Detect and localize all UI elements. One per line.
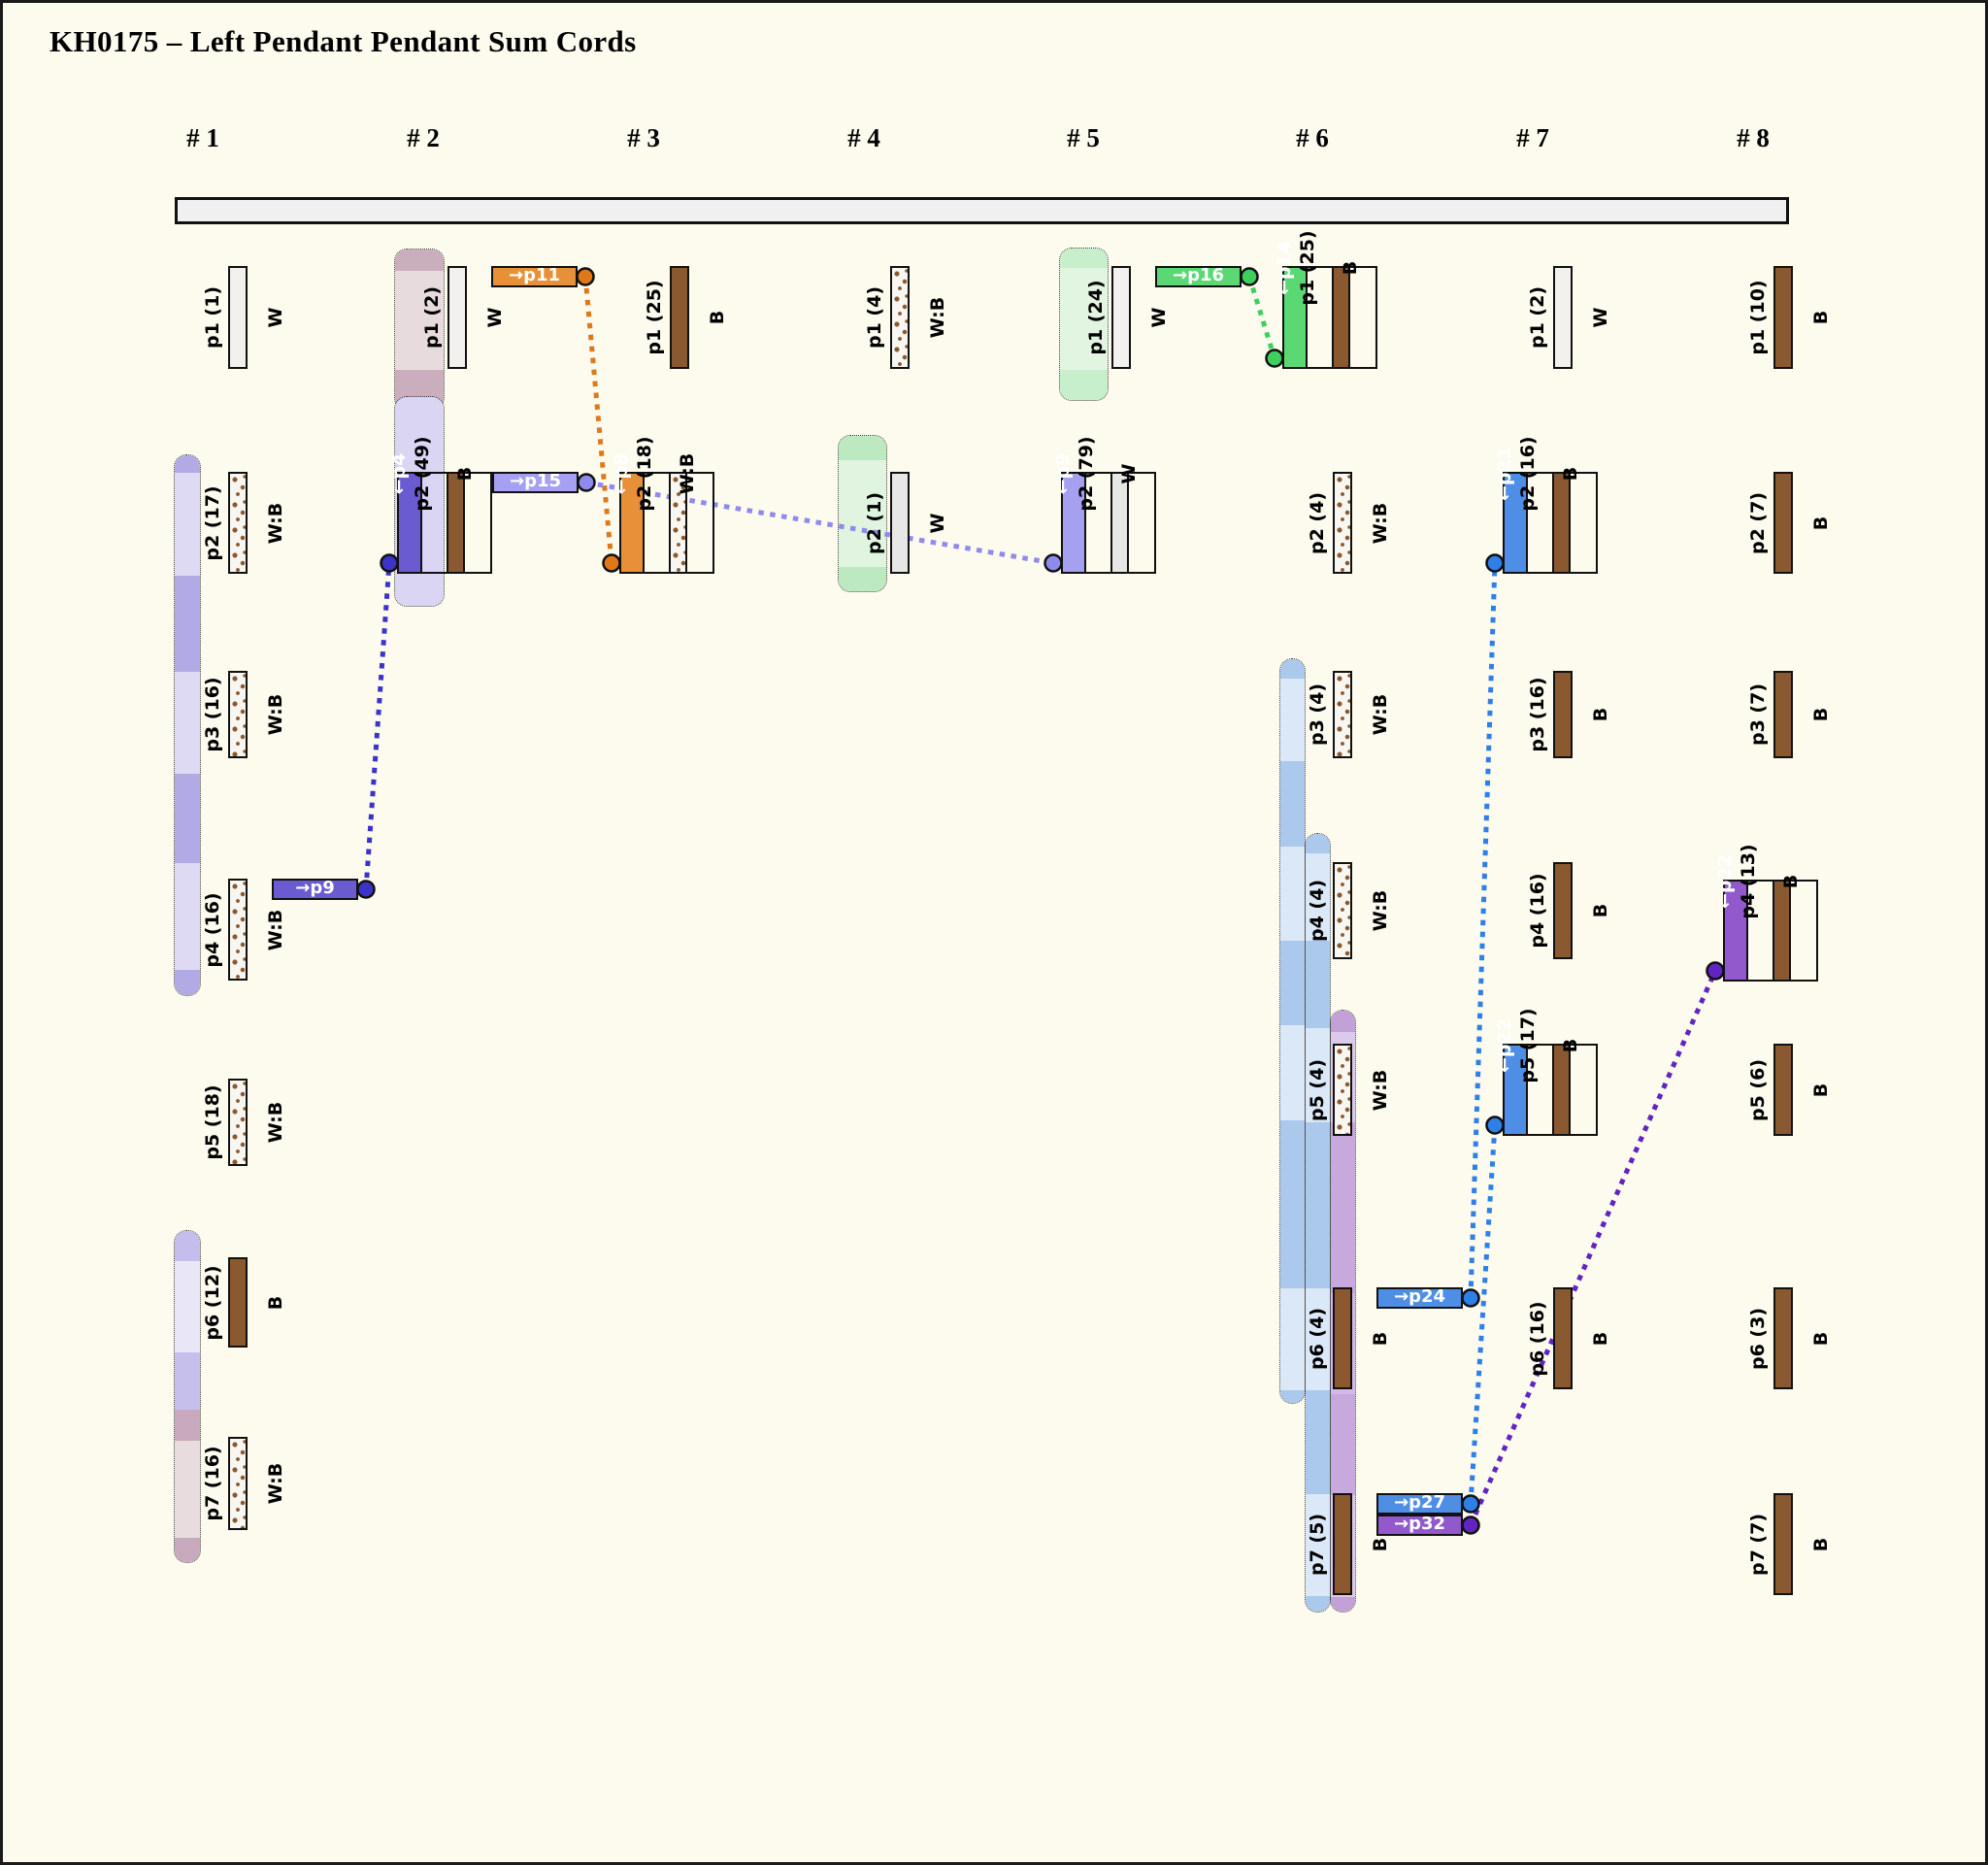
- pendant-label: p1 (24): [1085, 280, 1107, 354]
- band-segment: [1331, 1122, 1355, 1293]
- pendant-label: p1 (25): [644, 280, 665, 354]
- pendant-label: p4 (16): [1527, 873, 1548, 948]
- color-code: B: [1560, 1039, 1581, 1052]
- cord-color-swatch: [447, 474, 463, 572]
- cord-color-swatch: [1552, 474, 1569, 572]
- sum-cord-endpoint-dot: [1267, 350, 1283, 367]
- band-segment: [175, 1410, 200, 1441]
- color-code: B: [1810, 1537, 1832, 1550]
- color-code: W:B: [1370, 1069, 1391, 1110]
- pendant-label: p3 (16): [202, 677, 223, 751]
- cord-color-swatch: [1773, 882, 1789, 980]
- cord-group-band: [1305, 833, 1331, 1613]
- band-segment: [175, 473, 200, 576]
- color-code: B: [454, 467, 476, 481]
- band-segment: [1280, 847, 1305, 941]
- color-code: W: [1118, 464, 1140, 484]
- sum-cord-endpoint-dot: [1487, 1117, 1504, 1134]
- color-code-bar: W:B: [685, 474, 712, 572]
- pendant-cord-c6-p6: [1333, 1287, 1352, 1389]
- band-segment: [1306, 1390, 1330, 1494]
- sum-in-label: ←p22: [1494, 1018, 1515, 1073]
- pendant-value-bar: p2 (79): [1084, 474, 1110, 572]
- pendant-label: p3 (4): [1307, 683, 1328, 746]
- color-code: B: [1810, 1331, 1832, 1345]
- column-header-1: # 1: [186, 123, 219, 153]
- sum-cord-endpoint-dot: [358, 882, 375, 898]
- sum-cord-endpoint-dot: [604, 555, 620, 572]
- band-segment: [175, 970, 200, 996]
- sum-cord-lines-layer: [3, 3, 1988, 1865]
- band-segment: [1060, 249, 1108, 268]
- pendant-cord-c7-p6: [1553, 1287, 1573, 1389]
- cord-color-swatch: [1552, 1046, 1569, 1134]
- band-segment: [1306, 1596, 1330, 1613]
- pendant-label: p2 (7): [1747, 491, 1769, 553]
- band-segment: [175, 672, 200, 774]
- color-code: B: [1810, 516, 1832, 529]
- pendant-label: p1 (2): [1527, 286, 1548, 349]
- color-code: B: [1560, 467, 1581, 481]
- color-code: W:B: [677, 453, 698, 494]
- color-code: B: [1810, 708, 1832, 721]
- pendant-label: p4 (13): [1738, 844, 1759, 918]
- color-code: W:B: [927, 297, 948, 338]
- sum-out-label: →p24: [1376, 1287, 1463, 1309]
- sum-in-label: ←p8: [611, 453, 632, 495]
- pendant-cord-c1-p1: [228, 266, 248, 369]
- pendant-value-bar: p2 (49): [420, 474, 447, 572]
- column-header-7: # 7: [1516, 123, 1549, 153]
- pendant-label: p7 (16): [202, 1446, 223, 1520]
- band-segment: [175, 1352, 200, 1410]
- pendant-label: p1 (2): [421, 286, 443, 349]
- pendant-group-c2-p2: ←p4p2 (49)B: [397, 472, 492, 574]
- color-code: B: [1810, 311, 1832, 324]
- pendant-label: p2 (49): [412, 436, 433, 511]
- band-segment: [175, 1231, 200, 1261]
- color-code-bar: B: [463, 474, 489, 572]
- sum-cord-connector: [585, 277, 612, 563]
- pendant-label: p2 (1): [864, 491, 885, 553]
- pendant-cord-c3-p1: [670, 266, 689, 369]
- pendant-label: p1 (4): [864, 286, 885, 349]
- pendant-label: p5 (4): [1307, 1058, 1328, 1120]
- pendant-cord-c5-p1: [1111, 266, 1131, 369]
- sum-in-label: ←p9: [1052, 453, 1074, 495]
- sum-in-label: ←p21: [1494, 447, 1515, 501]
- color-code-bar: B: [1569, 1046, 1595, 1134]
- cord-group-band: [174, 454, 201, 996]
- sum-cord-connector: [1471, 1125, 1495, 1504]
- sum-cord-connector: [1249, 277, 1275, 358]
- sum-cord-connector: [1471, 563, 1495, 1298]
- sum-cord-endpoint-dot: [578, 269, 594, 285]
- pendant-group-c5-p2: ←p9p2 (79)W: [1061, 472, 1156, 574]
- pendant-label: p5 (18): [202, 1084, 223, 1159]
- pendant-cord-c8-p6: [1773, 1287, 1793, 1389]
- band-segment: [1331, 1597, 1355, 1613]
- color-code: W:B: [265, 909, 286, 949]
- color-code: W: [1590, 308, 1611, 328]
- pendant-label: p6 (12): [202, 1265, 223, 1340]
- color-code-bar: W: [1127, 474, 1153, 572]
- column-header-5: # 5: [1067, 123, 1100, 153]
- color-code: B: [1340, 261, 1361, 275]
- pendant-cord-c1-p6: [228, 1257, 248, 1348]
- sum-in-label: ←p4: [388, 453, 410, 495]
- color-code: W: [484, 308, 506, 328]
- diagram-title: KH0175 – Left Pendant Pendant Sum Cords: [50, 24, 637, 59]
- band-segment: [1280, 1120, 1305, 1288]
- pendant-label: p5 (17): [1517, 1008, 1539, 1082]
- band-segment: [175, 576, 200, 672]
- cord-color-swatch: [1332, 268, 1348, 367]
- pendant-label: p5 (6): [1747, 1058, 1769, 1120]
- pendant-label: p3 (7): [1747, 683, 1769, 746]
- pendant-label: p4 (4): [1307, 880, 1328, 942]
- sum-cord-endpoint-dot: [1045, 555, 1062, 572]
- column-header-3: # 3: [627, 123, 660, 153]
- color-code: W: [1148, 308, 1170, 328]
- color-code: W:B: [265, 1463, 286, 1504]
- cord-color-swatch: [1110, 474, 1127, 572]
- sum-out-label: →p27: [1376, 1493, 1463, 1515]
- band-segment: [1306, 941, 1330, 1028]
- pendant-label: p1 (10): [1747, 280, 1769, 354]
- color-code-bar: B: [1569, 474, 1595, 572]
- sum-out-label: →p15: [492, 472, 579, 493]
- pendant-label: p2 (79): [1076, 436, 1097, 511]
- color-code: B: [707, 311, 728, 324]
- pendant-group-c7-p2: ←p21p2 (16)B: [1503, 472, 1598, 574]
- sum-out-label: →p16: [1155, 266, 1242, 287]
- band-segment: [175, 1538, 200, 1563]
- color-code: B: [1590, 1331, 1611, 1345]
- pendant-cord-c7-p4: [1553, 862, 1573, 959]
- pendant-label: p3 (16): [1527, 677, 1548, 751]
- column-header-2: # 2: [407, 123, 440, 153]
- band-segment: [395, 250, 444, 271]
- pendant-label: p2 (17): [202, 485, 223, 560]
- pendant-value-bar: p2 (18): [643, 474, 669, 572]
- pendant-label: p2 (4): [1307, 491, 1328, 553]
- band-segment: [1280, 1288, 1305, 1390]
- sum-in-label: ←p14: [1274, 241, 1295, 295]
- color-code: W: [265, 308, 286, 328]
- pendant-label: p2 (18): [634, 436, 655, 511]
- sum-cord-endpoint-dot: [1242, 269, 1258, 285]
- band-segment: [175, 1441, 200, 1538]
- column-header-6: # 6: [1296, 123, 1329, 153]
- color-code: B: [1780, 875, 1802, 888]
- band-segment: [1306, 834, 1330, 853]
- color-code: W:B: [1370, 890, 1391, 931]
- color-code: W:B: [265, 694, 286, 735]
- band-segment: [1280, 679, 1305, 761]
- band-segment: [175, 455, 200, 473]
- band-segment: [1280, 1390, 1305, 1404]
- pendant-label: p6 (3): [1747, 1307, 1769, 1369]
- pendant-cord-c1-p7: [228, 1437, 248, 1530]
- band-segment: [1060, 370, 1108, 401]
- pendant-cord-c7-p3: [1553, 671, 1573, 758]
- pendant-label: p6 (4): [1307, 1307, 1328, 1369]
- column-header-4: # 4: [847, 123, 880, 153]
- sum-cord-endpoint-dot: [579, 475, 595, 491]
- band-segment: [1280, 659, 1305, 679]
- band-segment: [1306, 1122, 1330, 1288]
- pendant-cord-c4-p2: [890, 472, 910, 574]
- color-code: W: [927, 513, 948, 533]
- color-code: B: [1810, 1082, 1832, 1096]
- band-segment: [839, 567, 886, 592]
- color-code: B: [1370, 1331, 1391, 1345]
- pendant-cord-c2-p1: [447, 266, 467, 369]
- color-code: B: [1590, 904, 1611, 917]
- pendant-cord-c8-p2: [1773, 472, 1793, 574]
- pendant-group-c6-p1: ←p14p1 (25)B: [1282, 266, 1377, 369]
- pendant-cord-c1-p3: [228, 671, 248, 758]
- band-segment: [175, 1261, 200, 1352]
- pendant-cord-c8-p5: [1773, 1044, 1793, 1136]
- band-segment: [1280, 761, 1305, 847]
- pendant-value-bar: p4 (13): [1746, 882, 1773, 980]
- pendant-group-c8-p4: ←p22p4 (13)B: [1723, 880, 1818, 982]
- pendant-cord-c7-p1: [1553, 266, 1573, 369]
- pendant-value-bar: p5 (17): [1526, 1046, 1552, 1134]
- sum-in-label: ←p22: [1714, 854, 1736, 909]
- cord-group-band: [1279, 658, 1306, 1404]
- pendant-cord-c1-p5: [228, 1079, 248, 1166]
- color-code: B: [1370, 1537, 1391, 1550]
- pendant-label: p1 (1): [202, 286, 223, 349]
- sum-cord-endpoint-dot: [1463, 1290, 1479, 1307]
- band-segment: [175, 774, 200, 863]
- pendant-cord-c8-p7: [1773, 1493, 1793, 1595]
- cord-group-band: [174, 1230, 201, 1563]
- color-code-bar: B: [1789, 882, 1815, 980]
- pendant-cord-c6-p3: [1333, 671, 1352, 758]
- pendant-cord-c6-p4: [1333, 862, 1352, 959]
- pendant-cord-c8-p1: [1773, 266, 1793, 369]
- band-segment: [1331, 1394, 1355, 1495]
- column-header-8: # 8: [1737, 123, 1770, 153]
- pendant-cord-c4-p1: [890, 266, 910, 369]
- pendant-label: p1 (25): [1297, 230, 1318, 305]
- sum-cord-endpoint-dot: [1707, 963, 1724, 980]
- pendant-value-bar: p2 (16): [1526, 474, 1552, 572]
- sum-cord-endpoint-dot: [1463, 1496, 1479, 1513]
- primary-cord-bar: [175, 197, 1789, 224]
- sum-cord-endpoint-dot: [1463, 1517, 1479, 1534]
- band-segment: [175, 863, 200, 970]
- band-segment: [1280, 1025, 1305, 1120]
- sum-out-label: →p11: [491, 266, 578, 287]
- pendant-label: p2 (16): [1517, 436, 1539, 511]
- pendant-group-c7-p5: ←p22p5 (17)B: [1503, 1044, 1598, 1136]
- pendant-label: p6 (16): [1527, 1301, 1548, 1376]
- band-segment: [1331, 1011, 1355, 1032]
- sum-cord-dots-layer: [3, 3, 1988, 1865]
- pendant-cord-c6-p2: [1333, 472, 1352, 574]
- pendant-value-bar: p1 (25): [1306, 268, 1332, 367]
- color-code: W:B: [1370, 694, 1391, 735]
- pendant-label: p7 (7): [1747, 1513, 1769, 1575]
- color-code-bar: B: [1348, 268, 1375, 367]
- sum-out-label: →p32: [1376, 1515, 1463, 1536]
- color-code: B: [1590, 708, 1611, 721]
- sum-cord-connector: [366, 563, 389, 889]
- pendant-group-c3-p2: ←p8p2 (18)W:B: [619, 472, 714, 574]
- pendant-cord-c8-p3: [1773, 671, 1793, 758]
- sum-out-label: →p9: [272, 879, 358, 900]
- color-code: B: [265, 1295, 286, 1309]
- sum-cord-endpoint-dot: [1487, 555, 1504, 572]
- khipu-diagram-canvas: KH0175 – Left Pendant Pendant Sum Cords …: [0, 0, 1988, 1865]
- pendant-label: p4 (16): [202, 892, 223, 967]
- band-segment: [839, 436, 886, 460]
- pendant-label: p7 (5): [1307, 1513, 1328, 1575]
- pendant-cord-c1-p2: [228, 472, 248, 574]
- color-code: W:B: [1370, 502, 1391, 543]
- pendant-cord-c6-p5: [1333, 1044, 1352, 1136]
- pendant-cord-c6-p7: [1333, 1493, 1352, 1595]
- pendant-cord-c1-p4: [228, 879, 248, 981]
- band-segment: [1280, 941, 1305, 1025]
- color-code: W:B: [265, 502, 286, 543]
- color-code: W:B: [265, 1102, 286, 1143]
